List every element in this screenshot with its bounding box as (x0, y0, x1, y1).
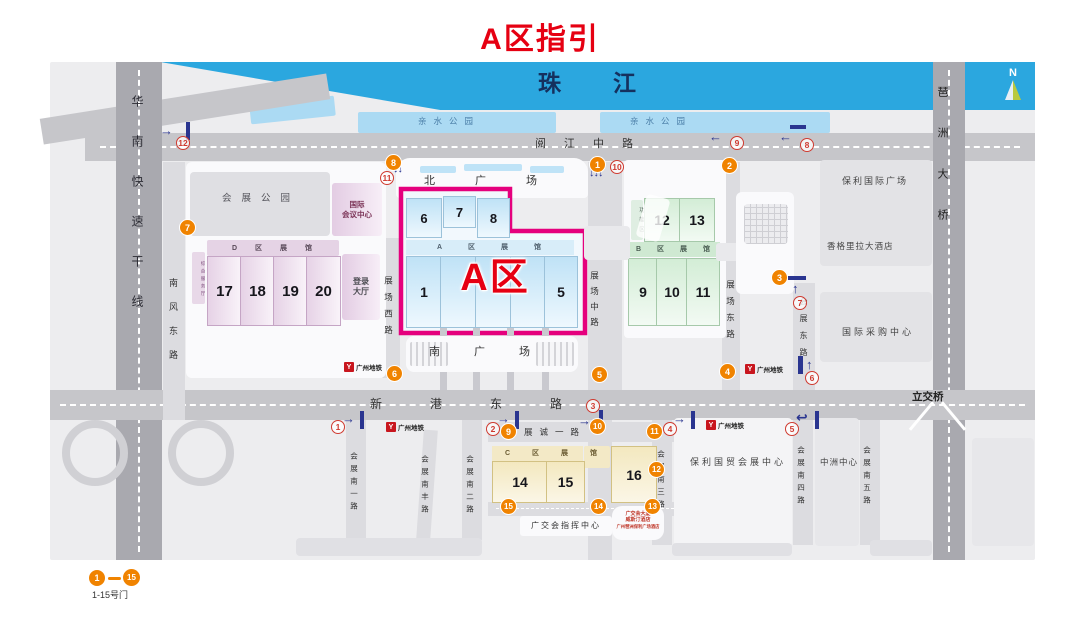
map-page: A区指引 珠江 亲水公园 亲水公园 阅江中路 华南快速干线 琶洲大桥 N 新港东… (0, 0, 1080, 626)
legend-dash (108, 577, 121, 580)
zhanchang-east-label: 展场东路 (726, 280, 735, 346)
login-hall-line2: 大厅 (353, 288, 369, 296)
gate-9-number: 9 (506, 427, 511, 437)
gate-14-number: 14 (594, 502, 603, 511)
route-marker-9: 9 (730, 136, 744, 150)
hall-20: 20 (306, 256, 341, 326)
login-hall-line1: 登录 (353, 278, 369, 286)
north-square-canopy (530, 166, 564, 173)
gate-10-number: 10 (593, 422, 602, 431)
route-8-number: 8 (805, 140, 810, 150)
poly-trade-label: 保利国贸会展中心 (690, 458, 786, 467)
route-marker-10: 10 (610, 160, 624, 174)
metro-logo: Y 广州地铁 (344, 362, 382, 372)
gate-13: 13 (645, 499, 660, 514)
south-strip-block (672, 543, 792, 556)
gate-15: 15 (501, 499, 516, 514)
a-zone-big-label: A区 (447, 246, 543, 294)
gate-2: 2 (722, 158, 737, 173)
zhancheng-road-label: 展诚一路 (524, 428, 586, 437)
gate-12: 12 (649, 462, 664, 477)
route-arrow: ← (709, 130, 722, 143)
hall-19-number: 19 (282, 283, 299, 300)
metro-label: 广州地铁 (356, 362, 382, 372)
legend-gate-last: 15 (123, 569, 140, 586)
hall-6: 6 (406, 198, 442, 238)
shangri-la-label: 香格里拉大酒店 (827, 242, 894, 251)
stop-bar (360, 411, 364, 429)
hall-1: 1 (406, 256, 442, 328)
exhibition-park-label: 会展公园 (222, 194, 300, 204)
gate-4: 4 (720, 364, 735, 379)
route-arrow: → (160, 124, 173, 137)
route-5-number: 5 (790, 424, 795, 434)
route-12-number: 12 (178, 138, 187, 148)
route-10-number: 10 (612, 162, 621, 172)
zhanchang-middle-road-south (588, 420, 612, 560)
gate-4-number: 4 (725, 367, 730, 377)
compass-needle-right (1013, 80, 1021, 100)
hall-16-number: 16 (626, 467, 642, 483)
login-hall: 登录 大厅 (342, 254, 380, 320)
route-marker-7: 7 (793, 296, 807, 310)
hall-8-number: 8 (490, 211, 497, 226)
gate-7: 7 (180, 220, 195, 235)
command-center-label: 广交会指挥中心 (531, 522, 601, 530)
south-square-label: 南广场 (429, 347, 564, 358)
hall-8: 8 (477, 198, 510, 238)
hall-1-number: 1 (420, 284, 428, 300)
route-marker-1: 1 (331, 420, 345, 434)
route-3-number: 3 (591, 401, 596, 411)
south-strip-block (296, 538, 482, 556)
park-label-east: 亲水公园 (630, 117, 692, 126)
gate-5: 5 (592, 367, 607, 382)
service-hall-label: 综合服务厅 (192, 252, 205, 304)
xingang-road-label: 新港东路 (370, 398, 610, 410)
hall-5: 5 (544, 256, 578, 328)
north-square-canopy (464, 164, 522, 171)
route-marker-11: 11 (380, 171, 394, 185)
metro-label: 广州地铁 (718, 420, 744, 430)
hall-17: 17 (207, 256, 242, 326)
d-zone-header-label: D区展馆 (232, 245, 330, 252)
pedestrian-bridge (584, 226, 630, 260)
pazhou-bridge-label: 琶洲大桥 (936, 86, 947, 250)
gate-12-number: 12 (652, 465, 661, 474)
interchange-loop (168, 420, 234, 486)
metro-icon: Y (745, 364, 755, 374)
hall-17-number: 17 (216, 283, 233, 300)
route-arrow: ↩ (796, 410, 808, 424)
poly-trade-block (674, 418, 792, 546)
route-6-number: 6 (810, 373, 815, 383)
hall-13: 13 (679, 198, 715, 242)
gate-11: 11 (647, 424, 662, 439)
route-arrow: ← (779, 130, 792, 143)
hall-5-number: 5 (557, 284, 565, 300)
pearl-river-label: 珠江 (538, 72, 688, 95)
b-zone-header-label: B区展馆 (636, 246, 726, 253)
hall-18: 18 (240, 256, 275, 326)
hall-10-number: 10 (664, 284, 680, 300)
metro-label: 广州地铁 (398, 422, 424, 432)
route-7-number: 7 (798, 298, 803, 308)
metro-icon: Y (706, 420, 716, 430)
hall-11-number: 11 (696, 284, 711, 300)
hall-6-number: 6 (420, 211, 427, 226)
stop-bar (790, 125, 806, 129)
road-centerline (948, 70, 950, 552)
metro-logo: Y 广州地铁 (706, 420, 744, 430)
route-2-number: 2 (491, 424, 496, 434)
route-arrow: ↑ (806, 358, 813, 371)
hall-7-number: 7 (456, 205, 463, 220)
route-arrow: ↑ (792, 282, 799, 295)
hall-15: 15 (546, 461, 585, 503)
legend-gate-first: 1 (89, 570, 105, 586)
north-square-canopy (420, 166, 456, 173)
route-9-number: 9 (735, 138, 740, 148)
south-strip-block (870, 540, 932, 556)
hall-18-number: 18 (249, 283, 266, 300)
sourcing-center-label: 国际采购中心 (842, 328, 914, 337)
stop-bar (515, 411, 519, 429)
poly-plaza-label: 保利国际广场 (842, 177, 908, 186)
hall-10: 10 (656, 258, 688, 326)
route-marker-4: 4 (663, 422, 677, 436)
gate-7-number: 7 (185, 223, 190, 233)
legend-last-number: 15 (127, 573, 136, 582)
stop-bar (815, 411, 819, 429)
route-marker-2: 2 (486, 422, 500, 436)
route-4-number: 4 (668, 424, 673, 434)
metro-logo: Y 广州地铁 (386, 422, 424, 432)
hall-7: 7 (443, 196, 476, 228)
gate-13-number: 13 (648, 502, 657, 511)
huizhan-nanfeng-label: 会展南丰路 (421, 455, 429, 518)
intl-convention-center: 国际 会议中心 (332, 183, 382, 236)
huizhan-south-1-label: 会展南一路 (350, 452, 358, 515)
hall-13-number: 13 (689, 212, 705, 228)
huizhan-south-4-label: 会展南四路 (797, 446, 805, 509)
nanfeng-road-label: 南风东路 (168, 278, 177, 374)
gate-2-number: 2 (727, 161, 732, 171)
interchange-loop (62, 420, 128, 486)
yuejiang-road-label: 阅江中路 (535, 139, 651, 150)
page-title: A区指引 (0, 14, 1080, 58)
gate-8: 8 (386, 155, 401, 170)
compass-icon: N (998, 68, 1028, 108)
hall-20-number: 20 (315, 283, 332, 300)
metro-label: 广州地铁 (757, 364, 783, 374)
compass-needle-icon (998, 80, 1028, 100)
gate-6-number: 6 (392, 369, 397, 379)
gate-1: 1 (590, 157, 605, 172)
compass-n-label: N (998, 68, 1028, 79)
c-zone-header-label: C区展馆 (505, 450, 619, 457)
route-marker-12: 12 (176, 136, 190, 150)
route-1-number: 1 (336, 422, 341, 432)
huizhan-south-2-label: 会展南二路 (466, 455, 474, 518)
hall-19: 19 (273, 256, 308, 326)
route-11-number: 11 (383, 173, 392, 183)
gate-1-number: 1 (595, 160, 600, 170)
gate-14: 14 (591, 499, 606, 514)
gate-6: 6 (387, 366, 402, 381)
east-side-block (972, 438, 1034, 546)
hall-15-number: 15 (558, 474, 574, 490)
gate-8-number: 8 (391, 158, 396, 168)
zhanchang-west-label: 展场西路 (384, 276, 393, 342)
stop-bar (691, 411, 695, 429)
hall-9-number: 9 (639, 284, 647, 300)
stop-bar (788, 276, 806, 280)
compass-needle-left (1005, 80, 1013, 100)
route-marker-5: 5 (785, 422, 799, 436)
legend-first-number: 1 (94, 573, 99, 583)
intl-convention-line2: 会议中心 (342, 211, 372, 219)
intl-convention-line1: 国际 (350, 201, 365, 209)
zhongzhou-label: 中洲中心 (820, 458, 858, 467)
hall-9: 9 (628, 258, 658, 326)
route-marker-6: 6 (805, 371, 819, 385)
hall-14-number: 14 (512, 474, 528, 490)
hall-11: 11 (686, 258, 720, 326)
gate-10: 10 (590, 419, 605, 434)
huizhan-south-5-label: 会展南五路 (863, 446, 871, 509)
route-marker-8: 8 (800, 138, 814, 152)
gate-5-number: 5 (597, 370, 602, 380)
gate-3: 3 (772, 270, 787, 285)
hotel-note-line3: 广州琶洲保利广场酒店 (612, 524, 664, 529)
zhongzhou-block (815, 418, 859, 546)
metro-icon: Y (386, 422, 396, 432)
legend-caption: 1-15号门 (92, 591, 128, 600)
exhibition-park (190, 172, 330, 236)
huanan-expressway-label: 华南快速干线 (131, 95, 143, 335)
overpass-label: 立交桥 (912, 392, 944, 403)
stop-bar (798, 356, 803, 374)
gate-3-number: 3 (777, 273, 782, 283)
metro-icon: Y (344, 362, 354, 372)
parking-grid (744, 204, 788, 244)
gate-9: 9 (501, 424, 516, 439)
gate-11-number: 11 (650, 427, 658, 436)
zhanchang-middle-label: 展场中路 (590, 271, 599, 333)
gate-15-number: 15 (504, 502, 513, 511)
route-marker-3: 3 (586, 399, 600, 413)
hall-14: 14 (492, 461, 548, 503)
metro-logo: Y 广州地铁 (745, 364, 783, 374)
park-label-west: 亲水公园 (418, 117, 480, 126)
